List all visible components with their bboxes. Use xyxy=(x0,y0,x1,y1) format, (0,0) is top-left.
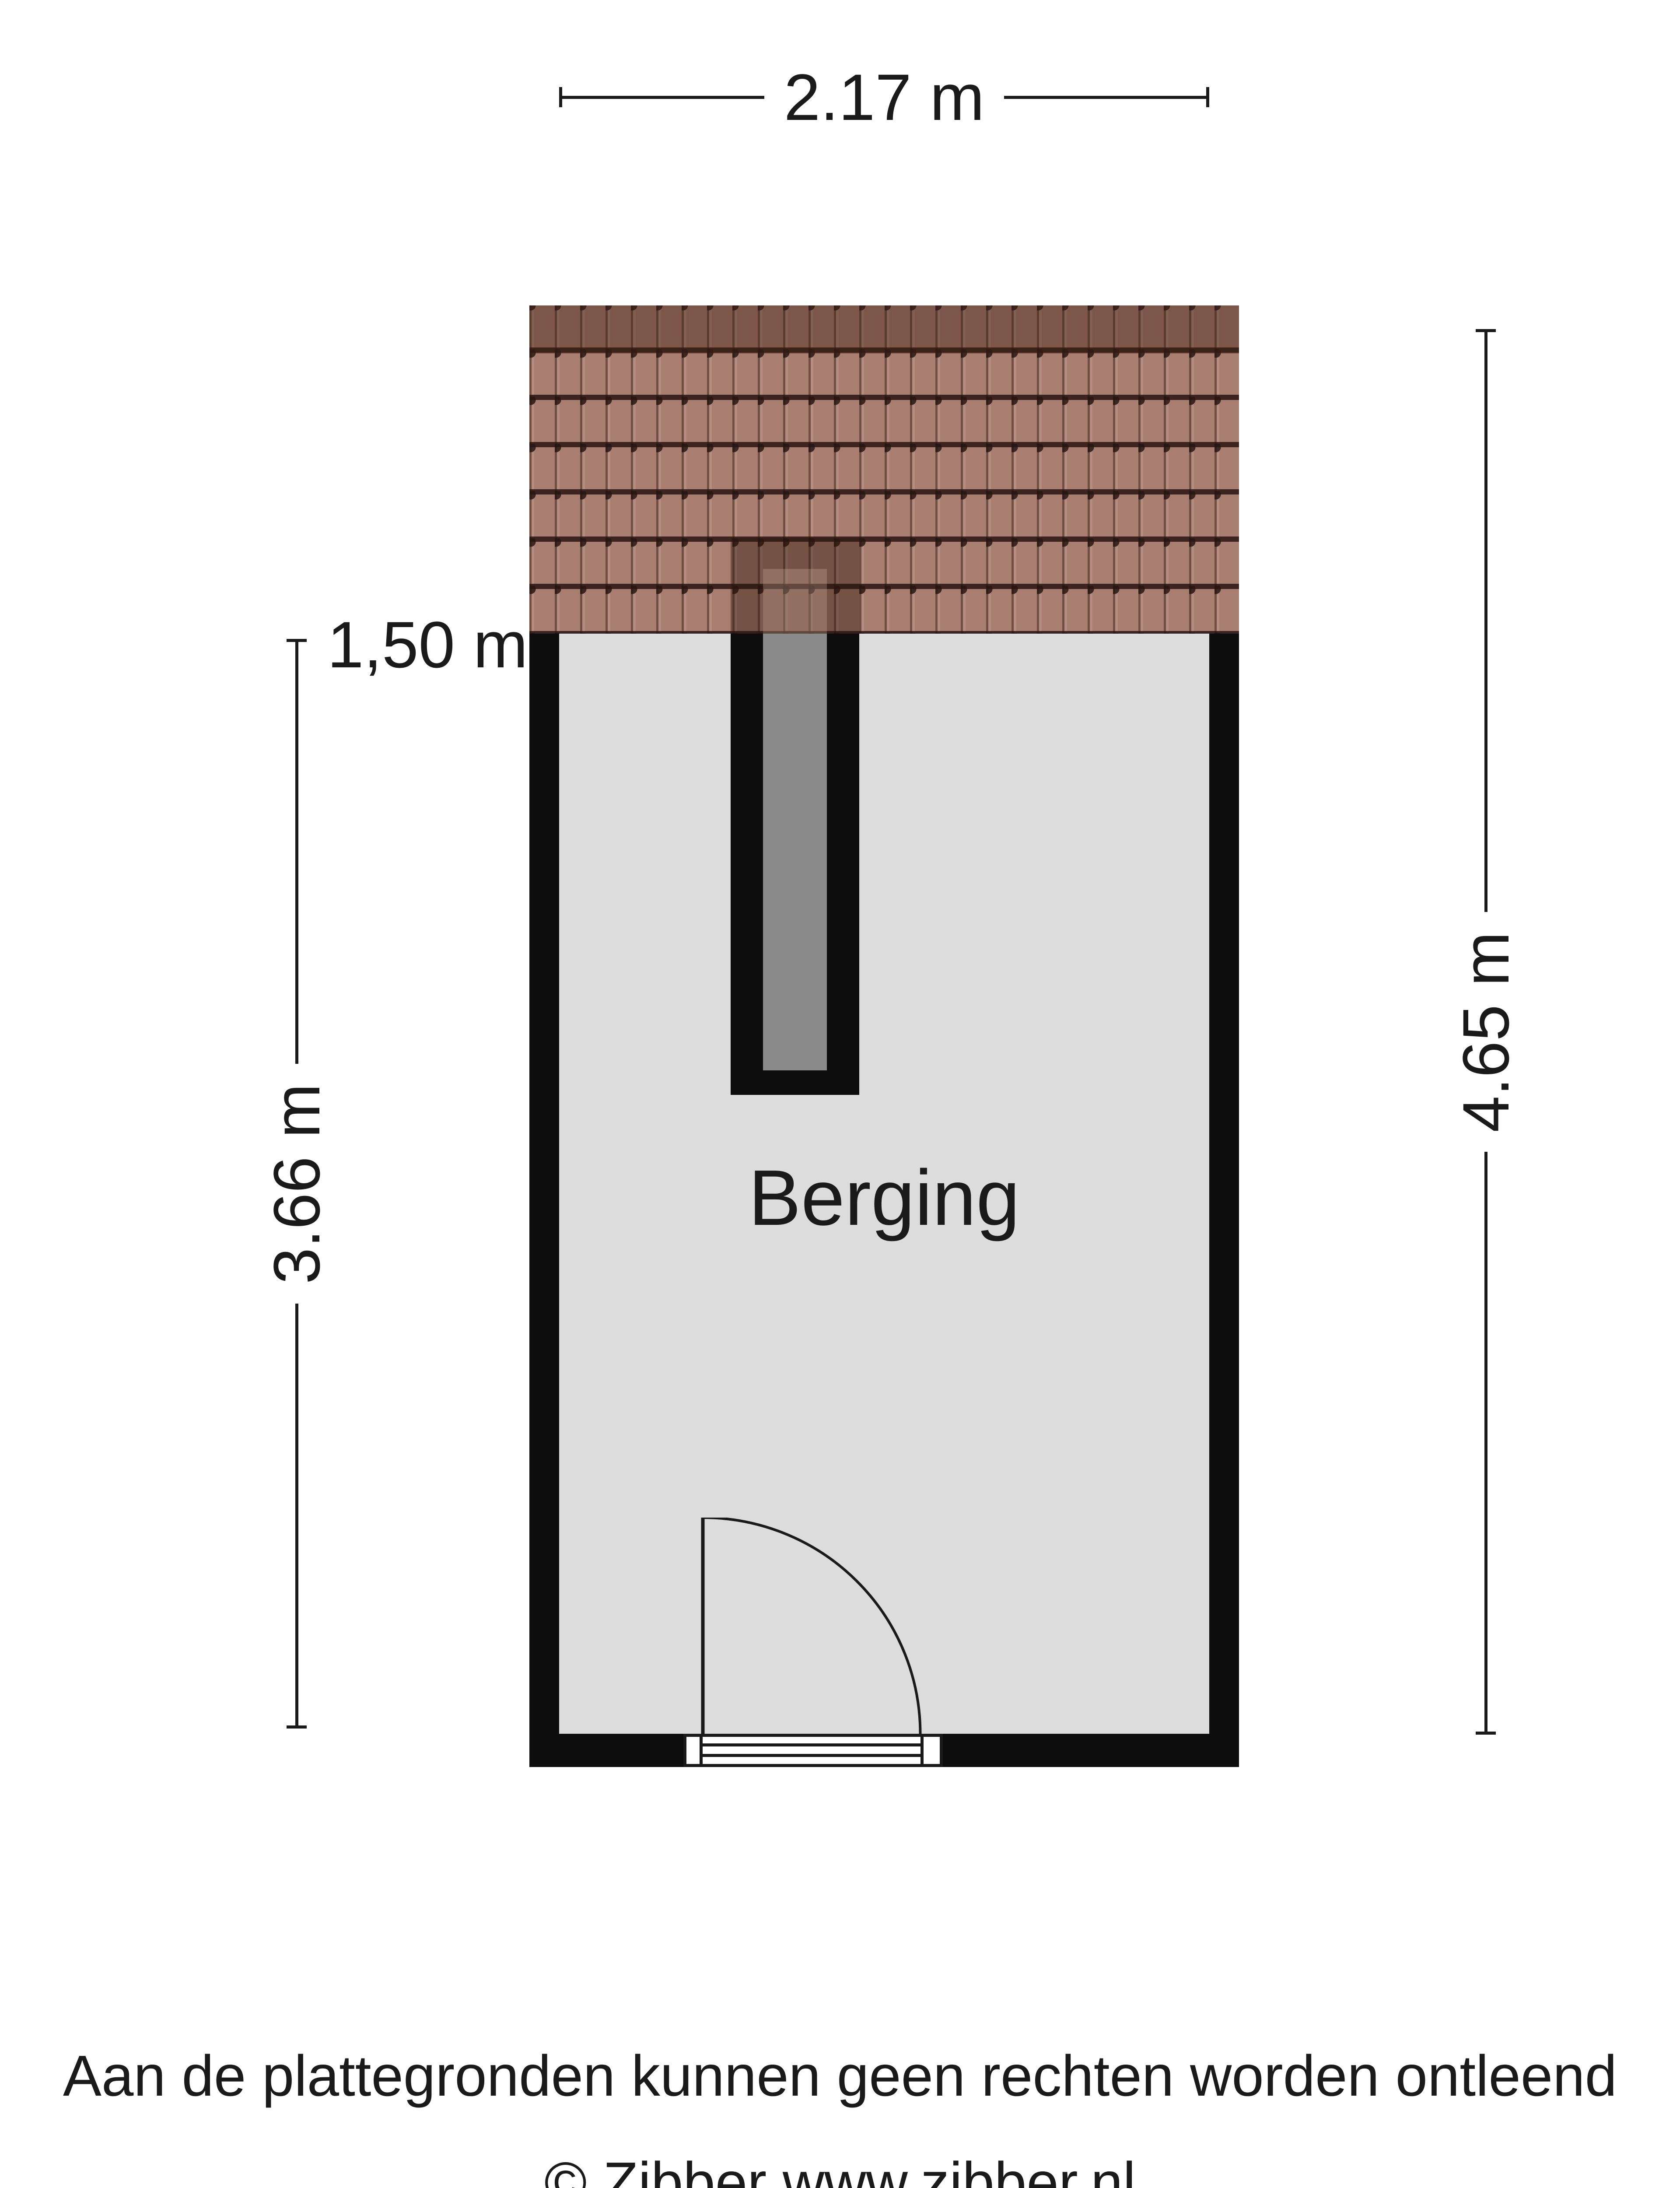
dimension-label-top: 2.17 m xyxy=(764,64,1004,130)
dimension-line xyxy=(295,642,298,1064)
footer-disclaimer: Aan de plattegronden kunnen geen rechten… xyxy=(0,2043,1680,2109)
dimension-line xyxy=(295,1304,298,1725)
dimension-line xyxy=(1004,96,1206,99)
wall-bottom-left xyxy=(559,1734,683,1767)
wall-bottom-right xyxy=(943,1734,1209,1767)
shaft-wall-right xyxy=(827,634,859,1095)
door-swing-arc xyxy=(703,1518,920,1734)
dimension-label-right: 4.65 m xyxy=(1453,912,1519,1152)
wall-right xyxy=(1209,634,1239,1767)
dimension-tick xyxy=(1476,329,1496,332)
shaft-roof-opening xyxy=(763,569,827,634)
door-swing xyxy=(700,1518,924,1737)
floorplan-page: 2.17 m 1,50 m 3.66 m 4.65 m xyxy=(0,0,1680,2188)
dimension-right-height: 4.65 m xyxy=(1476,329,1496,1735)
dimension-top-width: 2.17 m xyxy=(559,84,1209,110)
roof-tiles xyxy=(529,305,1239,634)
headroom-line-label: 1,50 m xyxy=(327,612,528,677)
dimension-tick xyxy=(1476,1732,1496,1735)
dimension-tick xyxy=(1206,87,1209,107)
dimension-line xyxy=(562,96,764,99)
door-threshold xyxy=(703,1734,920,1767)
dimension-tick xyxy=(287,639,307,642)
dimension-line xyxy=(1484,1152,1487,1732)
footer-copyright: © Zibber www.zibber.nl xyxy=(0,2149,1680,2188)
room-label: Berging xyxy=(559,1159,1209,1238)
dimension-tick xyxy=(559,87,562,107)
dimension-tick xyxy=(287,1725,307,1729)
dimension-label-left: 3.66 m xyxy=(264,1064,329,1304)
wall-left xyxy=(529,634,559,1767)
dimension-left-height: 3.66 m xyxy=(287,639,307,1729)
door-jamb-left xyxy=(683,1734,703,1767)
shaft-interior xyxy=(763,634,827,1070)
dimension-line xyxy=(1484,332,1487,912)
door-jamb-right xyxy=(920,1734,943,1767)
shaft-wall-left xyxy=(731,634,763,1095)
shaft-wall-bottom xyxy=(731,1070,859,1095)
